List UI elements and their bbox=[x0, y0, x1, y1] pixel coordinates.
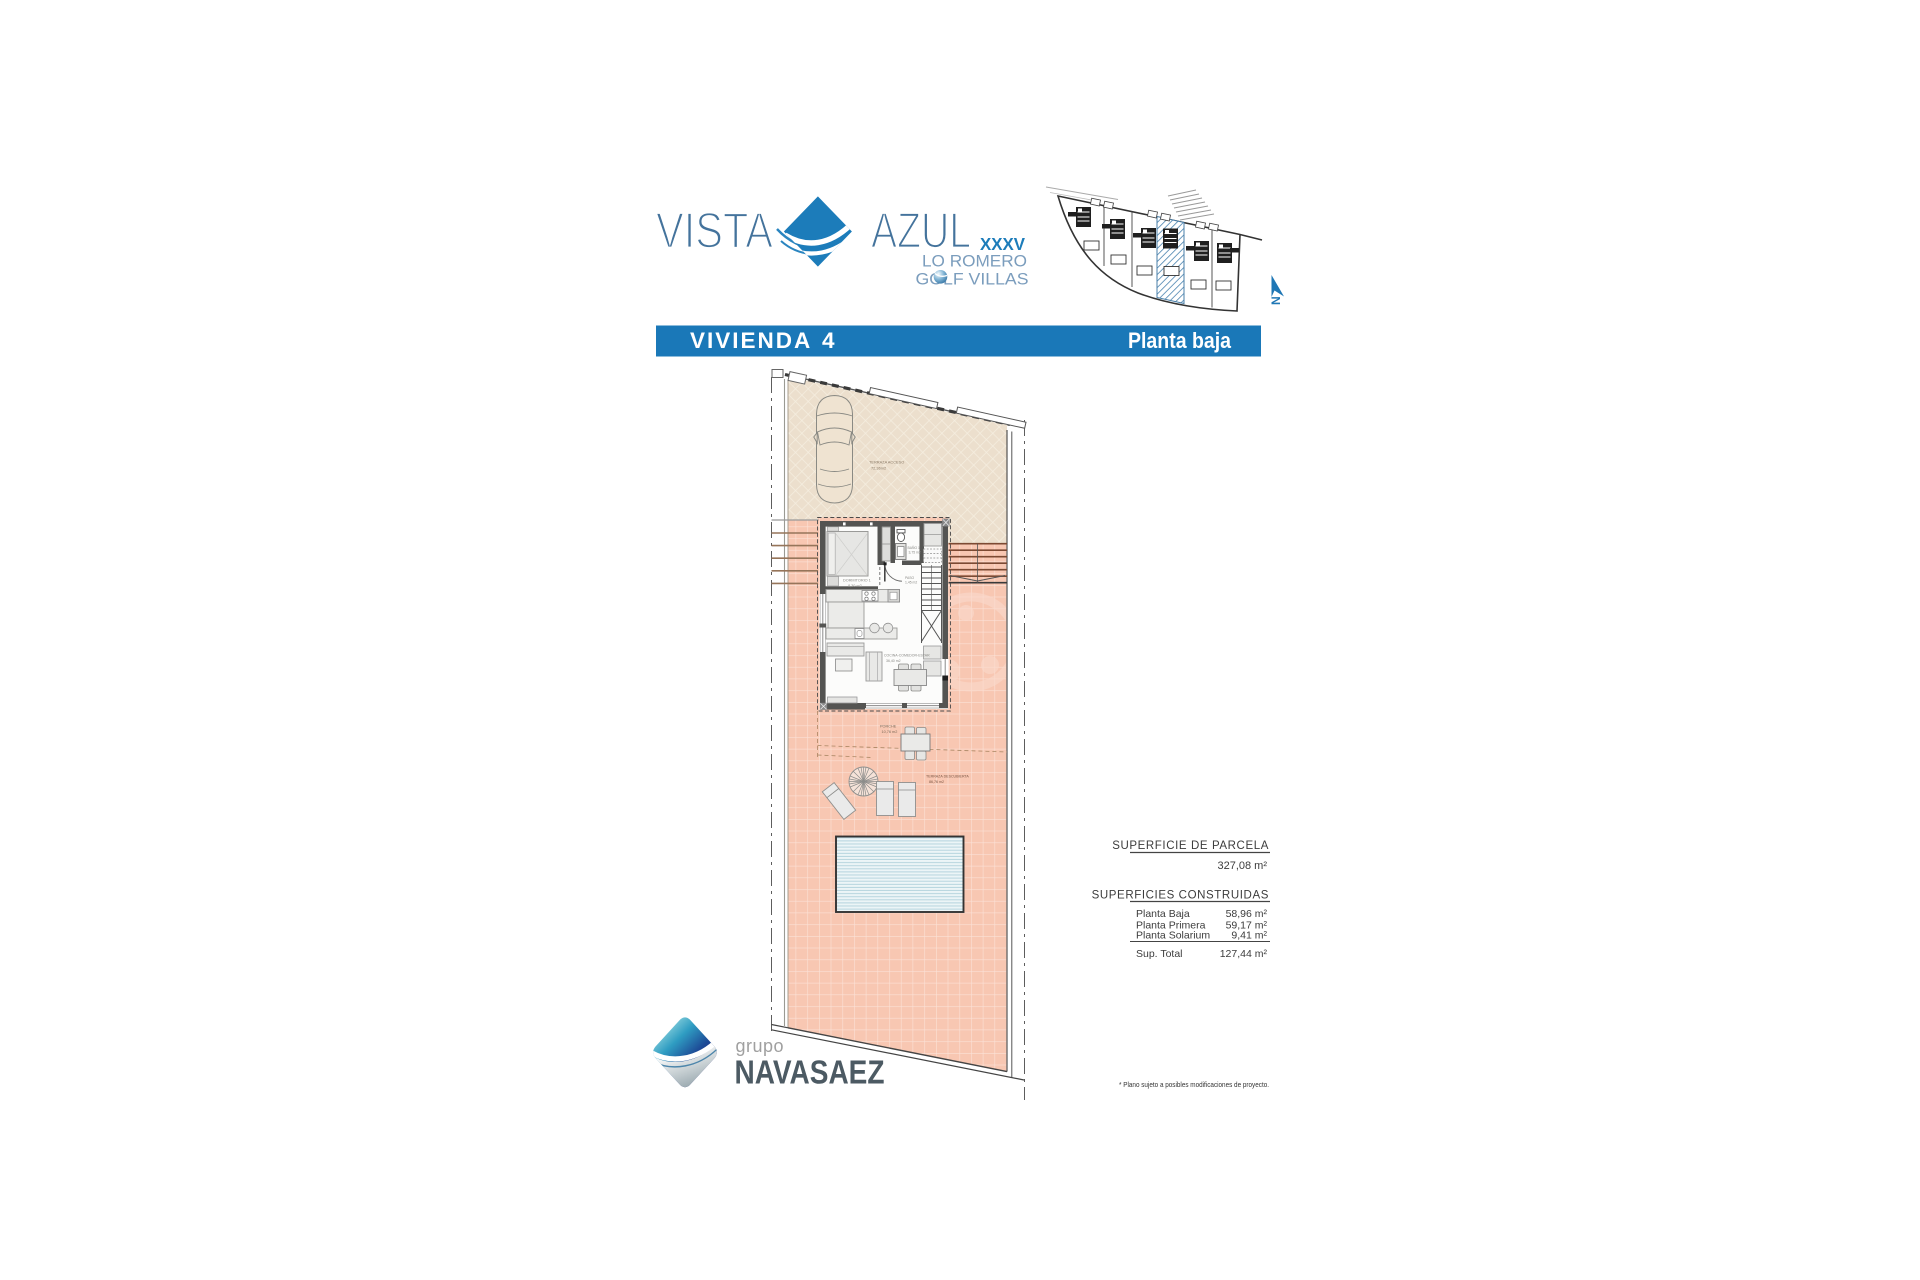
svg-text:TERRAZA DESCUBIERTA: TERRAZA DESCUBIERTA bbox=[926, 775, 969, 779]
svg-text:9,41 m²: 9,41 m² bbox=[1231, 930, 1267, 942]
svg-text:TERRAZA ACCESO: TERRAZA ACCESO bbox=[869, 460, 904, 465]
svg-text:COCINA-COMEDOR-ESTAR: COCINA-COMEDOR-ESTAR bbox=[884, 654, 930, 658]
svg-text:3,75 m2: 3,75 m2 bbox=[909, 551, 921, 555]
svg-text:BAÑO 1: BAÑO 1 bbox=[908, 545, 921, 550]
svg-text:327,08 m²: 327,08 m² bbox=[1217, 860, 1267, 872]
svg-text:SUPERFICIE DE PARCELA: SUPERFICIE DE PARCELA bbox=[1112, 840, 1269, 852]
svg-text:DORMITORIO 1: DORMITORIO 1 bbox=[843, 579, 871, 583]
svg-text:NAVASAEZ: NAVASAEZ bbox=[735, 1054, 885, 1091]
svg-text:PORCHE: PORCHE bbox=[880, 725, 897, 729]
svg-text:1,45 m2: 1,45 m2 bbox=[905, 581, 917, 585]
svg-text:127,44 m²: 127,44 m² bbox=[1220, 948, 1268, 960]
svg-text:Sup. Total: Sup. Total bbox=[1136, 948, 1183, 960]
svg-text:GOLF VILLAS: GOLF VILLAS bbox=[916, 270, 1029, 289]
svg-text:* Plano sujeto a posibles modi: * Plano sujeto a posibles modificaciones… bbox=[1119, 1080, 1269, 1089]
svg-text:VISTA: VISTA bbox=[656, 203, 774, 259]
svg-text:LO ROMERO: LO ROMERO bbox=[922, 252, 1027, 271]
svg-text:86,76 m2: 86,76 m2 bbox=[929, 780, 944, 784]
svg-text:PASO: PASO bbox=[905, 576, 915, 580]
svg-text:N: N bbox=[1269, 296, 1283, 305]
svg-text:8,30 m2: 8,30 m2 bbox=[848, 584, 862, 588]
svg-text:VIVIENDA: VIVIENDA bbox=[690, 328, 812, 353]
svg-text:36,40 m2: 36,40 m2 bbox=[886, 659, 901, 663]
svg-text:Planta Solarium: Planta Solarium bbox=[1136, 930, 1210, 942]
svg-text:58,96 m²: 58,96 m² bbox=[1226, 908, 1268, 920]
svg-text:10,76 m2: 10,76 m2 bbox=[882, 730, 898, 734]
svg-text:SUPERFICIES CONSTRUIDAS: SUPERFICIES CONSTRUIDAS bbox=[1092, 890, 1269, 902]
svg-text:4: 4 bbox=[822, 328, 835, 353]
svg-text:Planta baja: Planta baja bbox=[1128, 328, 1231, 353]
svg-text:72,36m2: 72,36m2 bbox=[871, 466, 886, 471]
svg-text:Planta Baja: Planta Baja bbox=[1136, 908, 1190, 920]
svg-text:AZUL: AZUL bbox=[871, 203, 971, 259]
